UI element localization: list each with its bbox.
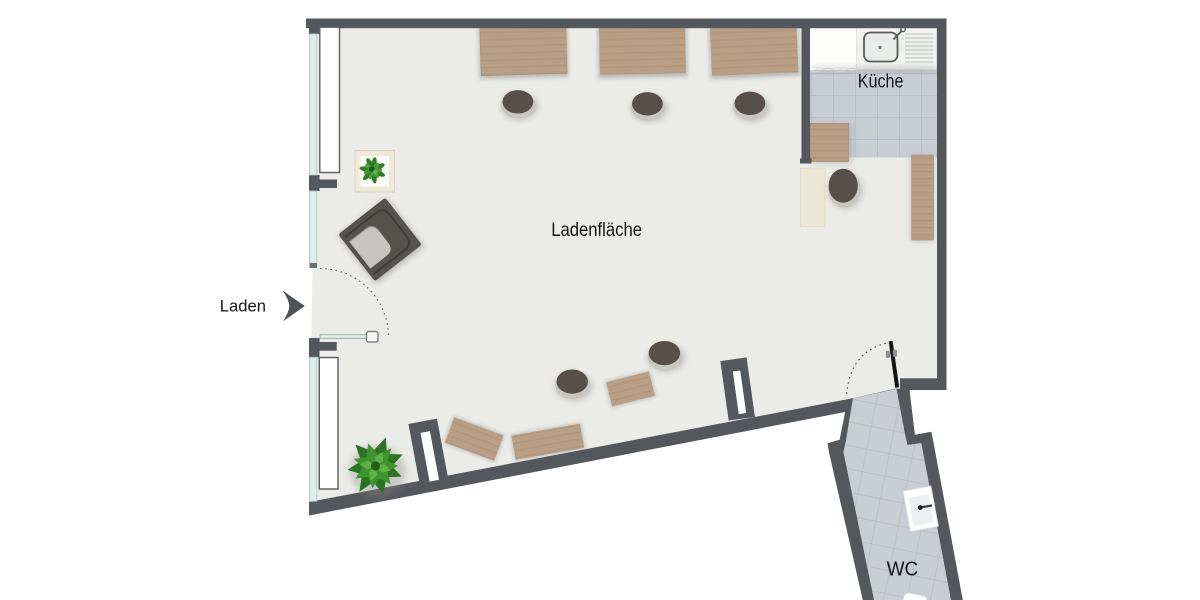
svg-text:Ladenfläche: Ladenfläche xyxy=(551,220,642,241)
svg-text:Laden: Laden xyxy=(220,297,266,316)
svg-text:Küche: Küche xyxy=(858,71,904,93)
svg-text:WC: WC xyxy=(887,558,919,580)
